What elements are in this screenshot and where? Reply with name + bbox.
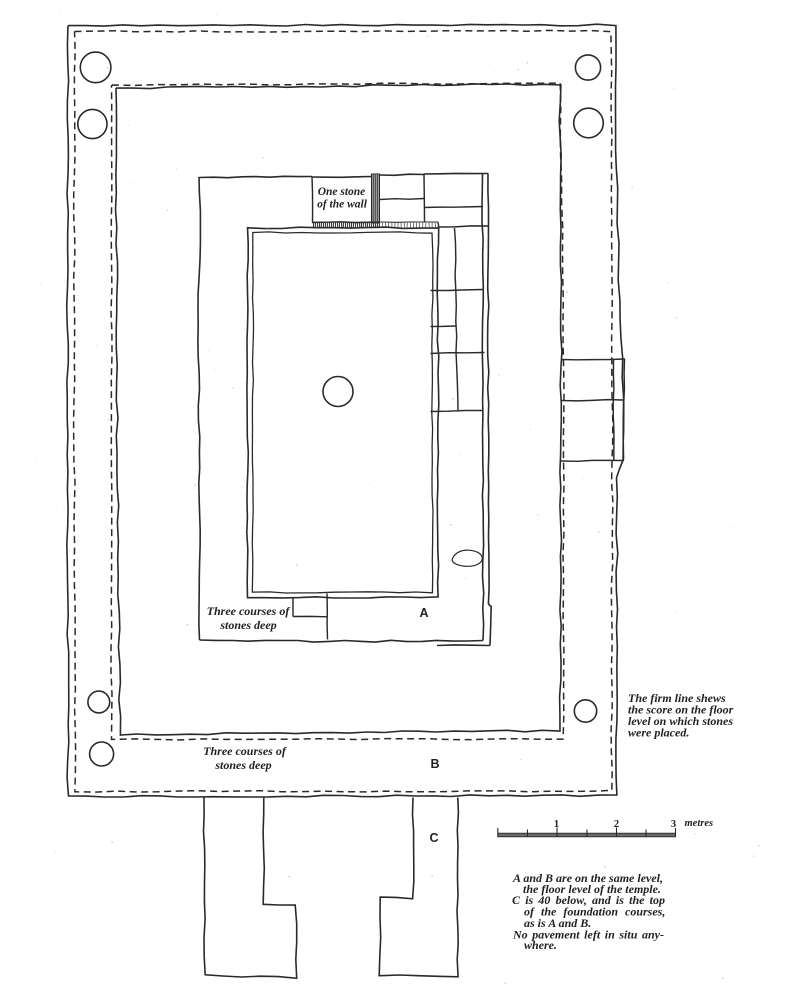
svg-text:stones deep: stones deep — [219, 618, 276, 632]
svg-text:Three courses of: Three courses of — [207, 604, 291, 618]
svg-text:3: 3 — [671, 819, 676, 830]
svg-text:metres: metres — [685, 818, 714, 829]
svg-text:2: 2 — [614, 819, 619, 830]
svg-text:were placed.: were placed. — [628, 726, 689, 740]
svg-text:stones deep: stones deep — [214, 758, 271, 772]
svg-text:C: C — [429, 831, 438, 845]
svg-text:where.: where. — [524, 938, 557, 952]
svg-text:of the wall: of the wall — [317, 199, 368, 211]
svg-text:One stone: One stone — [318, 186, 366, 198]
svg-text:1: 1 — [554, 819, 559, 830]
svg-text:B: B — [430, 757, 439, 771]
svg-text:A: A — [419, 606, 428, 620]
svg-text:Three courses of: Three courses of — [203, 744, 287, 758]
